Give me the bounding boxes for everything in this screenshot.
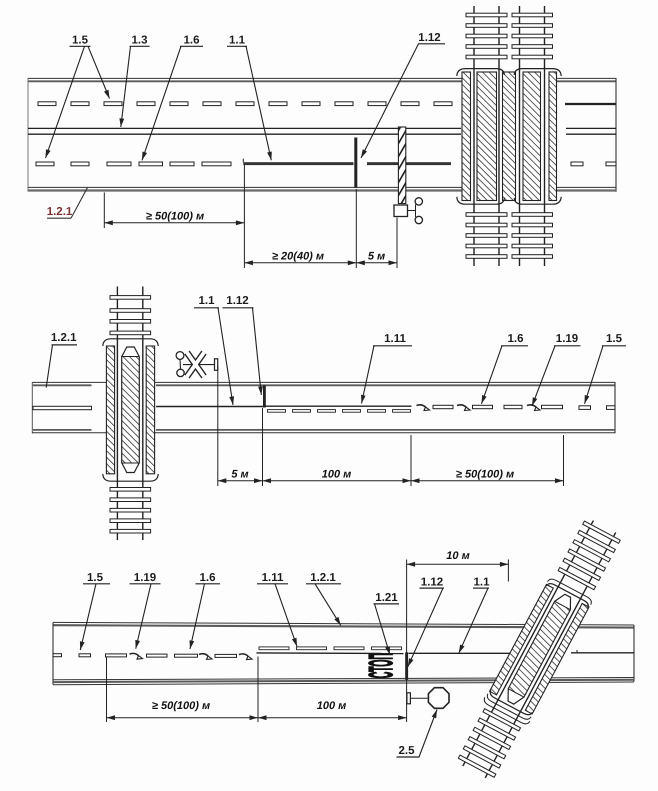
svg-text:1.12: 1.12	[226, 295, 248, 307]
svg-text:1.2.1: 1.2.1	[47, 206, 73, 218]
svg-text:100 м: 100 м	[322, 468, 352, 480]
svg-text:1.6: 1.6	[200, 572, 216, 584]
svg-text:5 м: 5 м	[231, 468, 248, 480]
svg-text:1.2.1: 1.2.1	[310, 572, 336, 584]
svg-text:1.2.1: 1.2.1	[51, 332, 77, 344]
svg-text:1.12: 1.12	[421, 576, 443, 588]
svg-text:1.11: 1.11	[384, 333, 406, 345]
svg-text:1.1: 1.1	[199, 295, 216, 307]
svg-text:1.6: 1.6	[184, 35, 200, 47]
svg-text:1.1: 1.1	[229, 35, 246, 47]
svg-text:1.6: 1.6	[508, 333, 524, 345]
svg-text:1.5: 1.5	[606, 333, 623, 345]
svg-text:10 м: 10 м	[446, 550, 469, 562]
svg-text:СТОП: СТОП	[366, 653, 402, 678]
svg-text:5 м: 5 м	[368, 251, 385, 263]
svg-text:2.5: 2.5	[399, 745, 416, 757]
svg-text:1.12: 1.12	[418, 32, 440, 44]
svg-text:1.21: 1.21	[375, 592, 398, 604]
svg-text:1.11: 1.11	[262, 572, 284, 584]
svg-text:100 м: 100 м	[317, 700, 347, 712]
svg-text:1.5: 1.5	[87, 572, 104, 584]
svg-text:1.19: 1.19	[556, 333, 578, 345]
svg-text:1.1: 1.1	[474, 576, 491, 588]
svg-text:≥ 50(100) м: ≥ 50(100) м	[456, 468, 514, 480]
svg-text:≥ 50(100) м: ≥ 50(100) м	[152, 700, 210, 712]
svg-text:1.3: 1.3	[132, 35, 148, 47]
svg-text:1.19: 1.19	[134, 572, 156, 584]
svg-text:≥ 50(100) м: ≥ 50(100) м	[146, 211, 204, 223]
svg-text:1.5: 1.5	[72, 35, 89, 47]
svg-text:≥ 20(40) м: ≥ 20(40) м	[272, 251, 324, 263]
